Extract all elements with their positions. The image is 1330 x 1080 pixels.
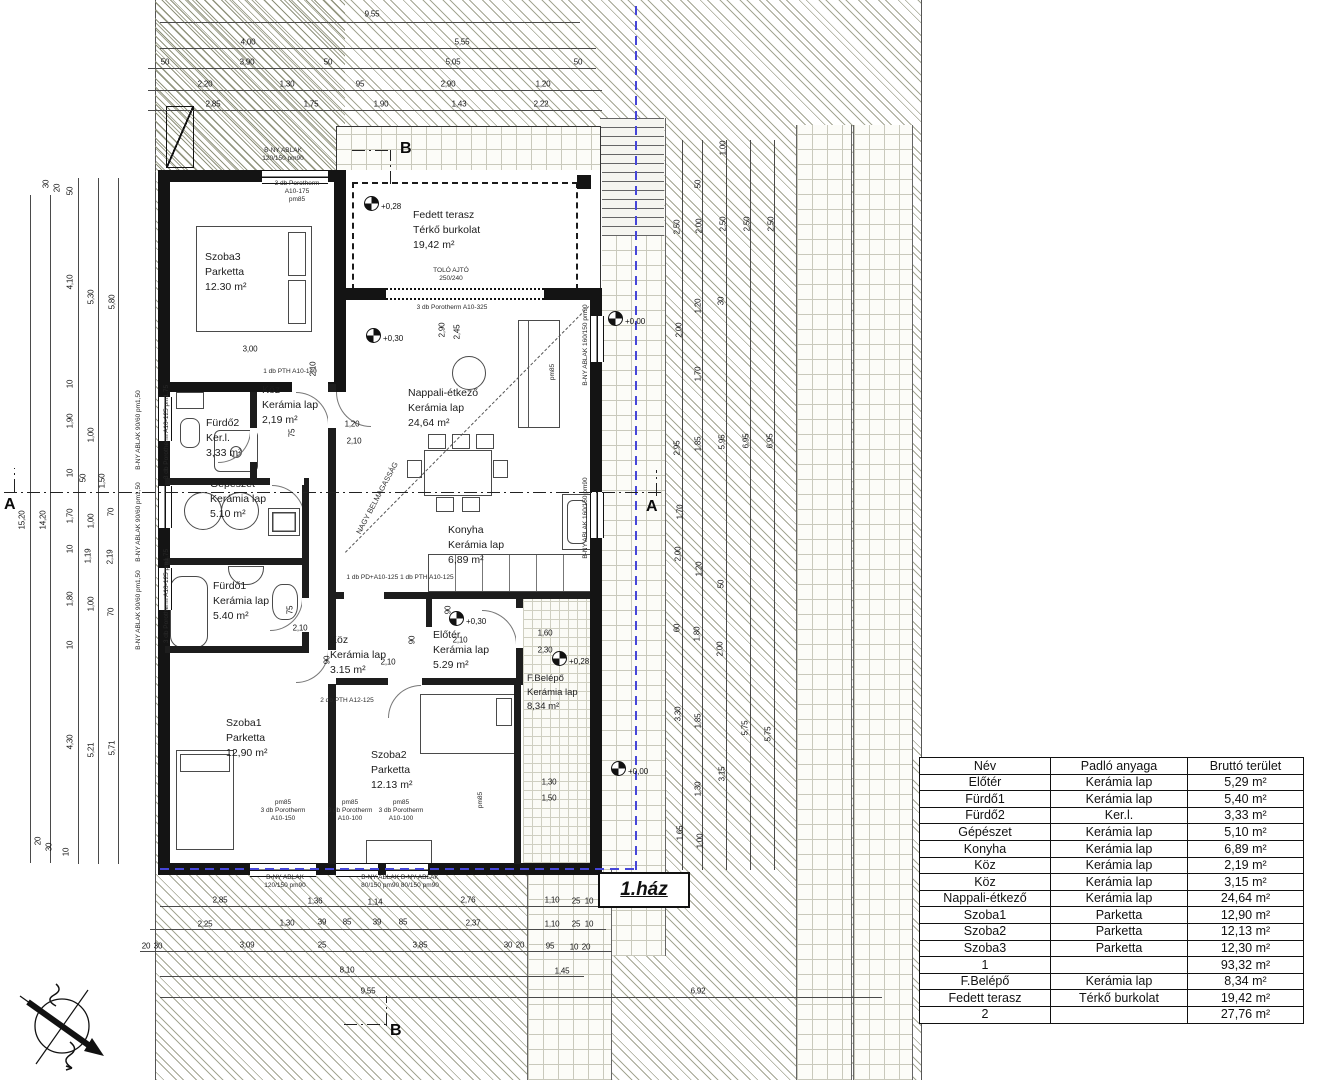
dim-label: 2,90: [438, 323, 447, 338]
bathtub: [170, 576, 208, 648]
cell-floor-material: Ker.l.: [1051, 807, 1188, 824]
dim-label: 1,20: [694, 299, 703, 314]
level-marker-icon: [552, 651, 567, 666]
table-row: Konyha Kerámia lap 6,89 m²: [920, 840, 1304, 857]
dim-label: 10: [66, 641, 75, 650]
dim-label: 2,10: [293, 624, 308, 633]
material-label: 2 db PTH A12-125: [320, 697, 373, 705]
dim-label: 1,90: [66, 414, 75, 429]
dim-label: 1,00: [696, 834, 705, 849]
dim-line: [160, 22, 580, 23]
dim-label: 2,25: [198, 920, 213, 929]
dim-label: 5,21: [87, 743, 96, 758]
window-label: 120/150 pm90: [262, 155, 304, 163]
dim-label: 20: [516, 941, 525, 950]
table-row: 1 93,32 m²: [920, 957, 1304, 974]
room-material: Kerámia lap: [433, 643, 489, 658]
col-header-name: Név: [920, 758, 1051, 775]
wall-segment: [426, 599, 432, 627]
area-table: Név Padló anyaga Bruttó terület Előtér K…: [919, 757, 1304, 1024]
table-header-row: Név Padló anyaga Bruttó terület: [920, 758, 1304, 775]
room-label-szoba1: Szoba1 Parketta 12,90 m²: [226, 716, 267, 762]
section-line-aa: [4, 492, 662, 493]
furniture-chair: [428, 434, 446, 449]
boundary-line-blue: [160, 868, 636, 870]
dim-label: 25: [572, 897, 581, 906]
dim-label: 20: [34, 837, 43, 846]
dim-label: 30: [504, 941, 513, 950]
dim-label: 25: [318, 941, 327, 950]
dim-label: 3,15: [718, 767, 727, 782]
dim-label: 10: [66, 380, 75, 389]
boundary-line-blue: [635, 0, 637, 870]
material-label: 3 db Porotherm A10-325: [417, 304, 488, 312]
dim-label: 2,50: [673, 220, 682, 235]
dim-line: [50, 195, 51, 863]
dim-label: 3,30: [674, 707, 683, 722]
dim-line: [118, 178, 119, 864]
material-label: pm85: [275, 799, 291, 807]
cell-room-name: Köz: [920, 874, 1051, 891]
material-label: pm85: [289, 196, 305, 204]
cell-room-name: 1: [920, 957, 1051, 974]
dim-label: 50: [717, 580, 726, 589]
dim-label: 2,00: [716, 642, 725, 657]
dim-label: 1,30: [694, 782, 703, 797]
dim-line: [702, 140, 703, 870]
dim-label: 1,00: [87, 514, 96, 529]
room-label-koz2: Köz Kerámia lap 3.15 m²: [330, 633, 386, 679]
dim-label: 8,10: [340, 966, 355, 975]
dim-label: 1,80: [66, 592, 75, 607]
room-area: 5.10 m²: [210, 507, 266, 522]
table-row: 2 27,76 m²: [920, 1006, 1304, 1023]
cell-floor-material: Kerámia lap: [1051, 857, 1188, 874]
room-material: Parketta: [226, 731, 267, 746]
dim-label: 3,90: [240, 58, 255, 67]
dim-label: 30: [45, 843, 54, 852]
cell-gross-area: 2,19 m²: [1188, 857, 1304, 874]
dim-label: 95: [356, 80, 365, 89]
dim-label: 2,19: [106, 550, 115, 565]
dim-label: 25: [572, 920, 581, 929]
room-area: 24,64 m²: [408, 416, 478, 431]
dim-label: 2,00: [674, 547, 683, 562]
room-label-nappali: Nappali-étkező Kerámia lap 24,64 m²: [408, 386, 478, 432]
room-material: Kerámia lap: [210, 492, 266, 507]
dim-line: [750, 140, 751, 870]
terrace-pillar: [577, 175, 591, 189]
section-line-bb-stub: [352, 150, 390, 151]
dim-label: 30: [154, 942, 163, 951]
dim-label: 4,30: [66, 735, 75, 750]
cell-gross-area: 12,30 m²: [1188, 940, 1304, 957]
dim-label: 1,75: [304, 100, 319, 109]
cell-gross-area: 24,64 m²: [1188, 890, 1304, 907]
dim-label: 10: [62, 848, 71, 857]
dim-label: 1,50: [542, 794, 557, 803]
dim-line: [148, 68, 596, 69]
dim-label: 1,30: [280, 919, 295, 928]
dim-label: 4,00: [241, 38, 256, 47]
room-area: 8,34 m²: [527, 700, 578, 714]
dim-label: 10: [570, 943, 579, 952]
dim-label: 2,95: [673, 441, 682, 456]
room-label-szoba2: Szoba2 Parketta 12.13 m²: [371, 748, 412, 794]
room-area: 12.30 m²: [205, 280, 246, 295]
room-material: Kerámia lap: [213, 594, 269, 609]
dim-label: 2,50: [719, 217, 728, 232]
dim-line: [726, 140, 727, 870]
room-label-terasz: Fedett terasz Térkő burkolat 19,42 m²: [413, 208, 480, 254]
col-header-area: Bruttó terület: [1188, 758, 1304, 775]
room-material: Parketta: [371, 763, 412, 778]
dim-label: 2,37: [466, 919, 481, 928]
cell-floor-material: Kerámia lap: [1051, 840, 1188, 857]
cell-floor-material: Kerámia lap: [1051, 890, 1188, 907]
sliding-door: [386, 288, 544, 300]
cell-room-name: Fürdő1: [920, 791, 1051, 808]
cell-gross-area: 19,42 m²: [1188, 990, 1304, 1007]
house-name-box: 1.ház: [598, 872, 690, 908]
dim-label: 2,10: [381, 658, 396, 667]
material-label: pm85: [477, 792, 485, 808]
dim-label: 1,20: [536, 80, 551, 89]
table-row: Szoba3 Parketta 12,30 m²: [920, 940, 1304, 957]
material-label: 3 db Porotherm A10-125 pm1,75: [163, 549, 171, 643]
dim-label: 30: [717, 297, 726, 306]
wall-segment: [514, 678, 521, 864]
room-material: Kerámia lap: [448, 538, 504, 553]
cell-gross-area: 5,40 m²: [1188, 791, 1304, 808]
dim-label: 1,30: [542, 778, 557, 787]
window-label: 80/150 pm90 80/150 pm90: [361, 882, 439, 890]
furniture-pillow: [496, 698, 512, 726]
material-label: 1 db PD+A10-125 1 db PTH A10-125: [346, 574, 453, 582]
room-label-fbelepo: F.Belépő Kerámia lap 8,34 m²: [527, 672, 578, 713]
material-label: 3 db Porotherm: [379, 807, 424, 815]
room-name: Szoba3: [205, 250, 246, 265]
dim-label: 2,50: [743, 217, 752, 232]
room-name: F.Belépő: [527, 672, 578, 686]
room-name: Fürdő1: [213, 579, 269, 594]
dim-label: 1,10: [545, 920, 560, 929]
table-row: Szoba1 Parketta 12,90 m²: [920, 907, 1304, 924]
room-name: Nappali-étkező: [408, 386, 478, 401]
dim-label: 3,00: [243, 345, 258, 354]
dim-label: 2,30: [538, 646, 553, 655]
walkway-east: [600, 118, 666, 956]
sliding-door-label: TOLÓ AJTÓ: [433, 267, 469, 275]
dim-label: 2,20: [198, 80, 213, 89]
section-line-bb-stub: [390, 150, 391, 184]
furniture-pillow: [180, 754, 230, 772]
dim-label: 9,55: [365, 10, 380, 19]
wall-segment: [590, 288, 602, 875]
material-label: pm85: [342, 799, 358, 807]
dim-label: 3,09: [240, 941, 255, 950]
section-line-aa-stub: [656, 470, 657, 496]
dim-label: 39: [373, 918, 382, 927]
door-opening: [344, 592, 384, 599]
dim-label: 2,00: [695, 219, 704, 234]
room-label-koz1: Köz Kerámia lap 2,19 m²: [262, 383, 318, 429]
cell-floor-material: Kerámia lap: [1051, 973, 1188, 990]
floor-plan-drawing: Szoba3 Parketta 12.30 m² Fedett terasz T…: [0, 0, 1330, 1080]
wall-segment: [165, 646, 307, 653]
wall-segment: [334, 170, 346, 392]
cell-gross-area: 27,76 m²: [1188, 1006, 1304, 1023]
cell-room-name: Szoba3: [920, 940, 1051, 957]
section-marker-a-right: A: [646, 498, 658, 516]
dim-label: 5,75: [741, 721, 750, 736]
dim-label: 70: [107, 508, 116, 517]
dim-label: 50: [324, 58, 333, 67]
wall-segment: [165, 558, 307, 565]
bathroom-sink: [176, 392, 204, 409]
window-label: 120/150 pm90: [264, 882, 306, 890]
section-marker-b-top: B: [400, 140, 412, 158]
material-label: 3 db Porotherm: [261, 807, 306, 815]
material-label: A10-150: [271, 815, 296, 823]
dim-label: 50: [161, 58, 170, 67]
dim-label: 1,85: [694, 714, 703, 729]
dim-label: 9,55: [361, 987, 376, 996]
room-material: Kerámia lap: [408, 401, 478, 416]
dim-label: 70: [107, 608, 116, 617]
dim-label: 5,75: [764, 727, 773, 742]
room-label-furdo1: Fürdő1 Kerámia lap 5.40 m²: [213, 579, 269, 625]
material-label: pm85: [549, 364, 557, 380]
dim-label: 50: [66, 187, 75, 196]
section-line-aa-stub: [14, 468, 15, 492]
furniture-pillow: [288, 232, 306, 276]
entry-porch-tiles: [523, 599, 590, 863]
material-label: pm85: [393, 799, 409, 807]
dim-label: 1,85: [694, 437, 703, 452]
room-name: Szoba2: [371, 748, 412, 763]
door-opening: [516, 608, 523, 648]
dim-label: 90: [444, 606, 453, 615]
door-opening: [250, 428, 257, 462]
level-value: +0,28: [381, 202, 401, 211]
dim-line: [78, 178, 79, 864]
dim-label: 10: [585, 897, 594, 906]
material-label: 3 db Porotherm A10-125 pm1,75: [163, 385, 171, 479]
dim-label: 75: [288, 429, 297, 438]
dim-label: 1,10: [545, 896, 560, 905]
dim-label: 50: [79, 474, 88, 483]
dim-label: 1,30: [280, 80, 295, 89]
dim-label: 95: [546, 942, 555, 951]
room-material: Ker.l.: [206, 431, 242, 446]
room-name: Konyha: [448, 523, 504, 538]
room-area: 3.15 m²: [330, 663, 386, 678]
dim-label: 2,90: [441, 80, 456, 89]
dim-line: [140, 951, 612, 952]
cell-gross-area: 3,15 m²: [1188, 874, 1304, 891]
dim-label: 1,20: [345, 420, 360, 429]
dim-label: 50: [694, 180, 703, 189]
dim-label: 2,85: [206, 100, 221, 109]
table-row: F.Belépő Kerámia lap 8,34 m²: [920, 973, 1304, 990]
dim-label: 1,43: [452, 100, 467, 109]
dim-label: 2,85: [213, 896, 228, 905]
path-strip-2: [853, 125, 913, 1080]
table-row: Fürdő1 Kerámia lap 5,40 m²: [920, 791, 1304, 808]
cell-room-name: Konyha: [920, 840, 1051, 857]
room-material: Kerámia lap: [330, 648, 386, 663]
dim-label: 10: [66, 469, 75, 478]
cell-room-name: Fürdő2: [920, 807, 1051, 824]
dim-label: 10: [66, 545, 75, 554]
cell-gross-area: 6,89 m²: [1188, 840, 1304, 857]
cell-room-name: Előtér: [920, 774, 1051, 791]
cell-gross-area: 5,29 m²: [1188, 774, 1304, 791]
room-label-konyha: Konyha Kerámia lap 6,89 m²: [448, 523, 504, 569]
dim-label: 2,00: [675, 323, 684, 338]
table-row: Fedett terasz Térkő burkolat 19,42 m²: [920, 990, 1304, 1007]
table-row: Fürdő2 Ker.l. 3,33 m²: [920, 807, 1304, 824]
dim-line: [774, 140, 775, 870]
window-label: B-NY ABLAK B-NY ABLAK: [361, 874, 438, 882]
furniture-chair: [493, 460, 508, 478]
window-label: B-NY ABLAK 90/60 pm1,50: [135, 390, 143, 469]
door-opening: [270, 478, 304, 485]
level-value: +0,00: [625, 317, 645, 326]
dim-label: 50: [574, 58, 583, 67]
furniture-chair: [436, 497, 454, 512]
wall-segment: [328, 384, 336, 864]
material-label: 1 db PTH A10-140: [263, 368, 316, 376]
cell-room-name: F.Belépő: [920, 973, 1051, 990]
dim-line: [160, 48, 596, 49]
cell-room-name: Szoba2: [920, 923, 1051, 940]
table-row: Gépészet Kerámia lap 5,10 m²: [920, 824, 1304, 841]
window: [590, 492, 604, 538]
room-area: 6,89 m²: [448, 553, 504, 568]
dim-label: 6,92: [691, 987, 706, 996]
dim-line: [30, 195, 31, 863]
room-area: 12.13 m²: [371, 778, 412, 793]
dim-label: 1,45: [555, 967, 570, 976]
level-marker-icon: [611, 761, 626, 776]
dim-label: 1,70: [676, 505, 685, 520]
section-line-bb-stub: [344, 1024, 386, 1025]
material-label: A10-100: [338, 815, 363, 823]
door-opening: [328, 392, 336, 428]
cell-floor-material: Parketta: [1051, 923, 1188, 940]
window-label: B-NY ABLAK 160/150 pm90: [582, 304, 590, 385]
dim-label: 10: [585, 920, 594, 929]
material-label: 3 db Porotherm: [328, 807, 373, 815]
sliding-door-label: 250/240: [439, 275, 463, 283]
level-marker-icon: [608, 311, 623, 326]
room-material: Térkő burkolat: [413, 223, 480, 238]
room-name: Köz: [262, 383, 318, 398]
dim-line: [148, 90, 602, 91]
room-area: 12,90 m²: [226, 746, 267, 761]
dim-label: 15,20: [18, 510, 27, 529]
col-header-material: Padló anyaga: [1051, 758, 1188, 775]
dim-label: 90: [323, 656, 332, 665]
table-row: Köz Kerámia lap 3,15 m²: [920, 874, 1304, 891]
level-value: +0,30: [383, 334, 403, 343]
cell-gross-area: 12,90 m²: [1188, 907, 1304, 924]
dim-label: 30: [42, 180, 51, 189]
dim-label: 14,20: [39, 510, 48, 529]
dim-label: 6,95: [766, 434, 775, 449]
cell-gross-area: 12,13 m²: [1188, 923, 1304, 940]
dim-label: 5,05: [446, 58, 461, 67]
dim-label: 4,10: [66, 275, 75, 290]
window-label: B-NY ABLAK: [266, 874, 304, 882]
room-name: Szoba1: [226, 716, 267, 731]
section-marker-a-left: A: [4, 496, 16, 514]
cell-room-name: Nappali-étkező: [920, 890, 1051, 907]
dim-label: 75: [286, 606, 295, 615]
room-label-szoba3: Szoba3 Parketta 12.30 m²: [205, 250, 246, 296]
dim-label: 1,90: [374, 100, 389, 109]
cell-room-name: 2: [920, 1006, 1051, 1023]
furniture-pillow: [288, 280, 306, 324]
room-area: 19,42 m²: [413, 238, 480, 253]
furniture-chair: [462, 497, 480, 512]
table-row: Köz Kerámia lap 2,19 m²: [920, 857, 1304, 874]
dim-label: 1,36: [308, 897, 323, 906]
dim-label: 1,00: [87, 597, 96, 612]
level-value: +0,00: [628, 767, 648, 776]
cell-gross-area: 3,33 m²: [1188, 807, 1304, 824]
dim-label: 1,00: [87, 428, 96, 443]
cell-floor-material: Parketta: [1051, 940, 1188, 957]
table-row: Előtér Kerámia lap 5,29 m²: [920, 774, 1304, 791]
cell-floor-material: Kerámia lap: [1051, 791, 1188, 808]
level-marker-icon: [364, 196, 379, 211]
dim-label: 2,10: [347, 437, 362, 446]
section-line-bb-stub: [386, 996, 387, 1026]
room-area: 5.29 m²: [433, 658, 489, 673]
cell-floor-material: Térkő burkolat: [1051, 990, 1188, 1007]
cell-gross-area: 8,34 m²: [1188, 973, 1304, 990]
room-label-furdo2: Fürdő2 Ker.l. 3,33 m²: [206, 416, 242, 462]
dim-line: [160, 997, 882, 998]
room-area: 3,33 m²: [206, 446, 242, 461]
dim-line: [98, 178, 99, 864]
furniture-dining-table: [424, 450, 492, 496]
dim-label: 85: [343, 918, 352, 927]
dim-label: 2,45: [453, 325, 462, 340]
dim-label: 39: [318, 918, 327, 927]
dim-line: [148, 110, 602, 111]
cell-room-name: Köz: [920, 857, 1051, 874]
dim-label: 20: [53, 184, 62, 193]
cell-floor-material: Parketta: [1051, 907, 1188, 924]
level-value: +0,30: [466, 617, 486, 626]
window-label: B-NY ABLAK 90/60 pm1,50: [135, 482, 143, 561]
level-value: +0,28: [569, 657, 589, 666]
dim-label: 20: [142, 942, 151, 951]
material-label: A10-100: [389, 815, 414, 823]
room-area: 2,19 m²: [262, 413, 318, 428]
dim-label: 2,22: [534, 100, 549, 109]
dim-line: [150, 929, 606, 930]
furniture-chair: [476, 434, 494, 449]
material-label: A10-175: [285, 188, 310, 196]
room-material: Kerámia lap: [262, 398, 318, 413]
dim-label: 5,55: [455, 38, 470, 47]
wall-segment: [336, 678, 522, 685]
